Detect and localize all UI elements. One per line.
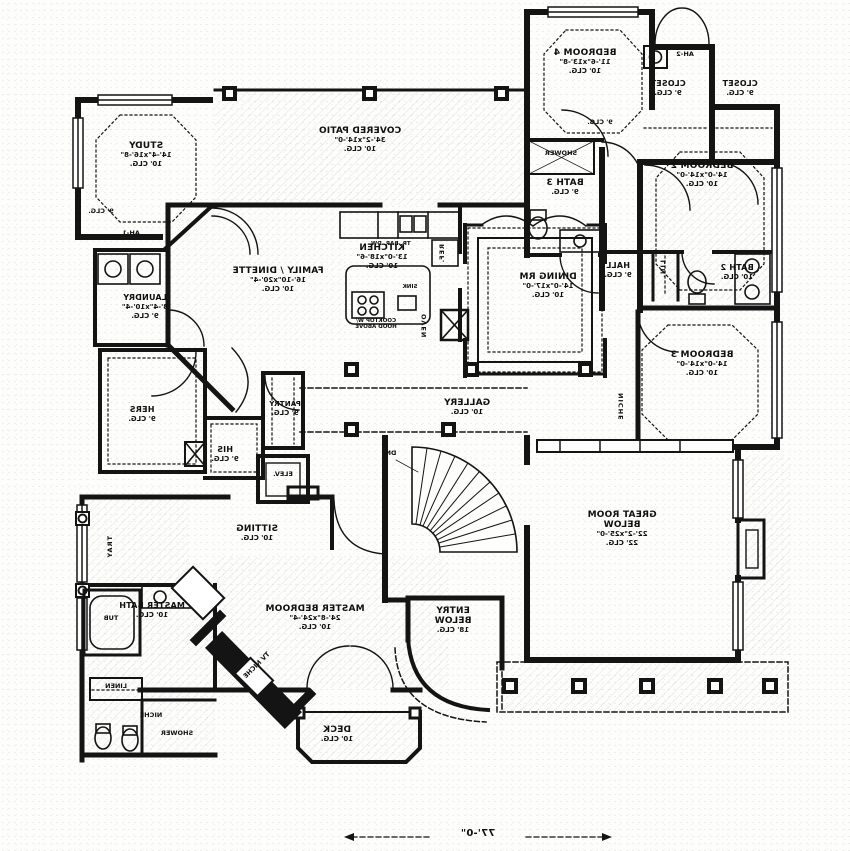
floorplan-linework: [0, 0, 850, 851]
dimension-line: [344, 833, 612, 841]
floorplan-sheet: BEDROOM 411'-6"x13'-8"10' CLG. CLOSET9' …: [0, 0, 850, 851]
curved-staircase: [396, 447, 517, 552]
